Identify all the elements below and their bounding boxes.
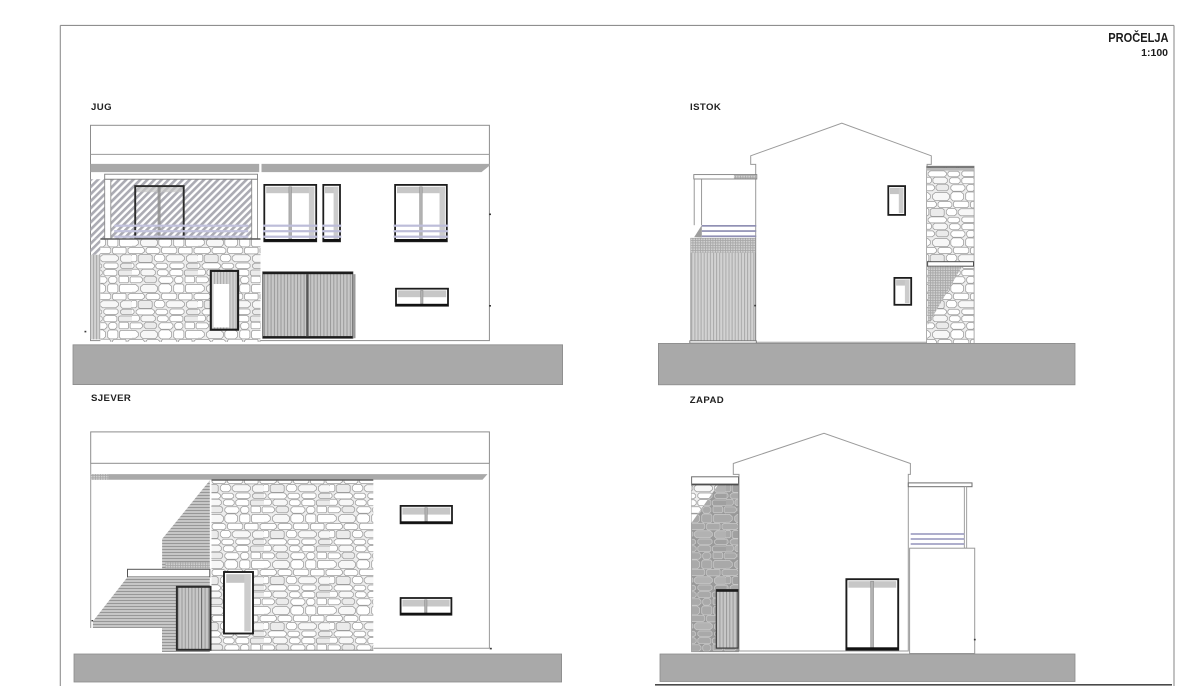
svg-text:1:100: 1:100 — [1141, 47, 1168, 59]
svg-text:JUG: JUG — [91, 102, 112, 113]
svg-text:PROČELJA: PROČELJA — [1108, 29, 1168, 45]
svg-text:ZAPAD: ZAPAD — [690, 395, 724, 406]
svg-text:ISTOK: ISTOK — [690, 102, 721, 113]
svg-text:SJEVER: SJEVER — [91, 393, 131, 404]
